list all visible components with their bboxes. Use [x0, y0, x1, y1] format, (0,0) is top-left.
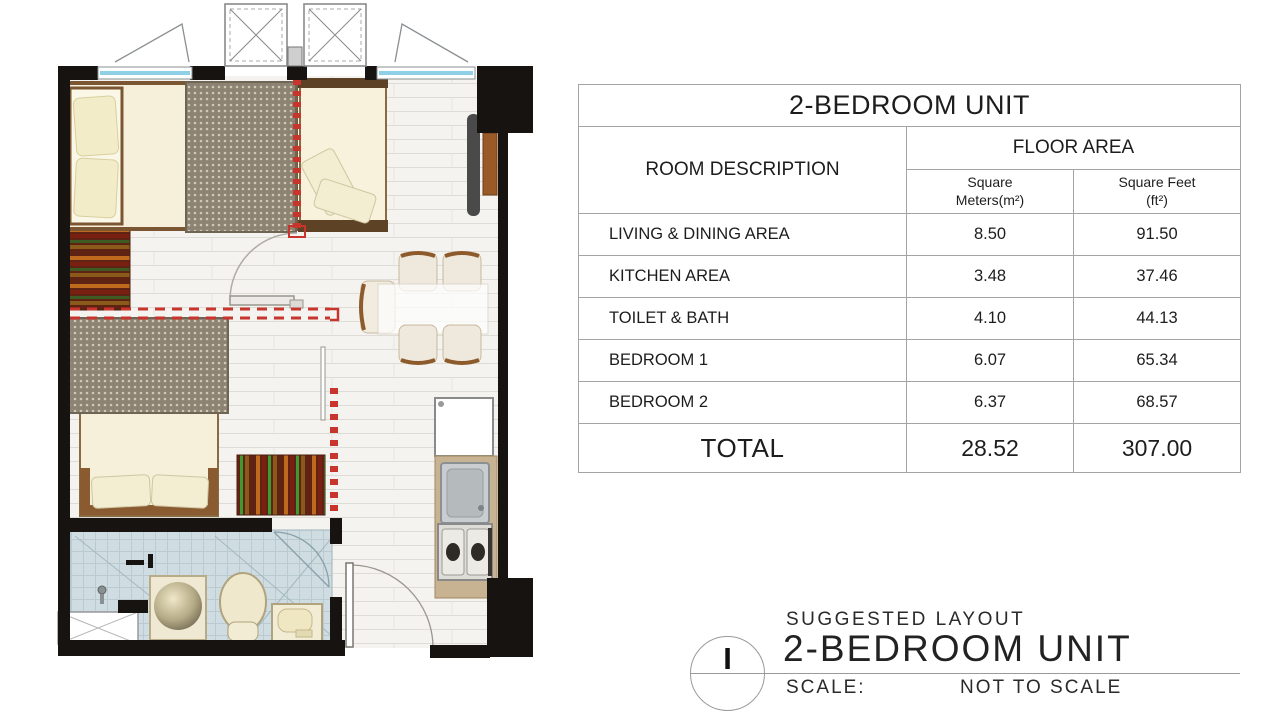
room-sqm: 3.48: [907, 256, 1074, 298]
floor-area-table: 2-BEDROOM UNIT ROOM DESCRIPTION FLOOR AR…: [578, 84, 1241, 473]
bed-3: [68, 318, 228, 516]
drawing-number-bubble: I: [690, 636, 765, 711]
column-header-sqft: Square Feet (ft²): [1074, 170, 1241, 214]
utility-shaft: [225, 4, 366, 66]
tv-console: [483, 133, 497, 195]
floor-plan: [0, 0, 560, 720]
awning-sash: [395, 24, 468, 62]
title-block-line: [690, 673, 1240, 674]
table-row: BEDROOM 2 6.37 68.57: [579, 382, 1241, 424]
scale-value: NOT TO SCALE: [960, 677, 1122, 699]
column-header-sqm: Square Meters(m²): [907, 170, 1074, 214]
refrigerator: [435, 398, 493, 456]
bathroom-wall: [58, 518, 272, 532]
room-sqft: 37.46: [1074, 256, 1241, 298]
wall-column-top-right: [477, 66, 533, 133]
room-name: TOILET & BATH: [579, 298, 907, 340]
stove: [438, 524, 492, 580]
bathtub: [272, 604, 322, 642]
duvet-1: [186, 82, 296, 232]
drawing-number: I: [691, 641, 764, 677]
room-sqft: 44.13: [1074, 298, 1241, 340]
rug-2: [237, 455, 325, 515]
room-sqm: 4.10: [907, 298, 1074, 340]
bed-2: [298, 78, 388, 232]
total-sqm: 28.52: [907, 424, 1074, 473]
room-sqft: 65.34: [1074, 340, 1241, 382]
column-header-room: ROOM DESCRIPTION: [579, 127, 907, 214]
room-name: BEDROOM 1: [579, 340, 907, 382]
table-row: TOILET & BATH 4.10 44.13: [579, 298, 1241, 340]
room-sqm: 6.37: [907, 382, 1074, 424]
total-label: TOTAL: [579, 424, 907, 473]
room-sqft: 91.50: [1074, 214, 1241, 256]
table-total-row: TOTAL 28.52 307.00: [579, 424, 1241, 473]
kitchen: [435, 398, 497, 598]
dining-chair: [399, 325, 437, 363]
bed-1: [66, 82, 296, 232]
room-name: BEDROOM 2: [579, 382, 907, 424]
duvet-3: [68, 318, 228, 413]
room-sqm: 6.07: [907, 340, 1074, 382]
console-shelf: [230, 296, 294, 305]
table-row: KITCHEN AREA 3.48 37.46: [579, 256, 1241, 298]
table-row: LIVING & DINING AREA 8.50 91.50: [579, 214, 1241, 256]
awning-sash: [115, 24, 189, 62]
table-title-row: 2-BEDROOM UNIT: [579, 85, 1241, 127]
room-name: KITCHEN AREA: [579, 256, 907, 298]
unit-type-label: 2-BEDROOM UNIT: [783, 628, 1132, 670]
room-sqft: 68.57: [1074, 382, 1241, 424]
sliding-track: [321, 347, 325, 420]
scale-label: SCALE:: [786, 677, 866, 699]
table-row: BEDROOM 1 6.07 65.34: [579, 340, 1241, 382]
column-header-floor-area: FLOOR AREA: [907, 127, 1241, 170]
kitchen-sink: [441, 463, 489, 523]
wash-basin: [150, 576, 206, 640]
table-title: 2-BEDROOM UNIT: [579, 85, 1241, 127]
rug-1: [68, 228, 130, 310]
total-sqft: 307.00: [1074, 424, 1241, 473]
room-sqm: 8.50: [907, 214, 1074, 256]
room-name: LIVING & DINING AREA: [579, 214, 907, 256]
wall-column-bottom-right: [487, 578, 533, 657]
dining-chair: [443, 325, 481, 363]
